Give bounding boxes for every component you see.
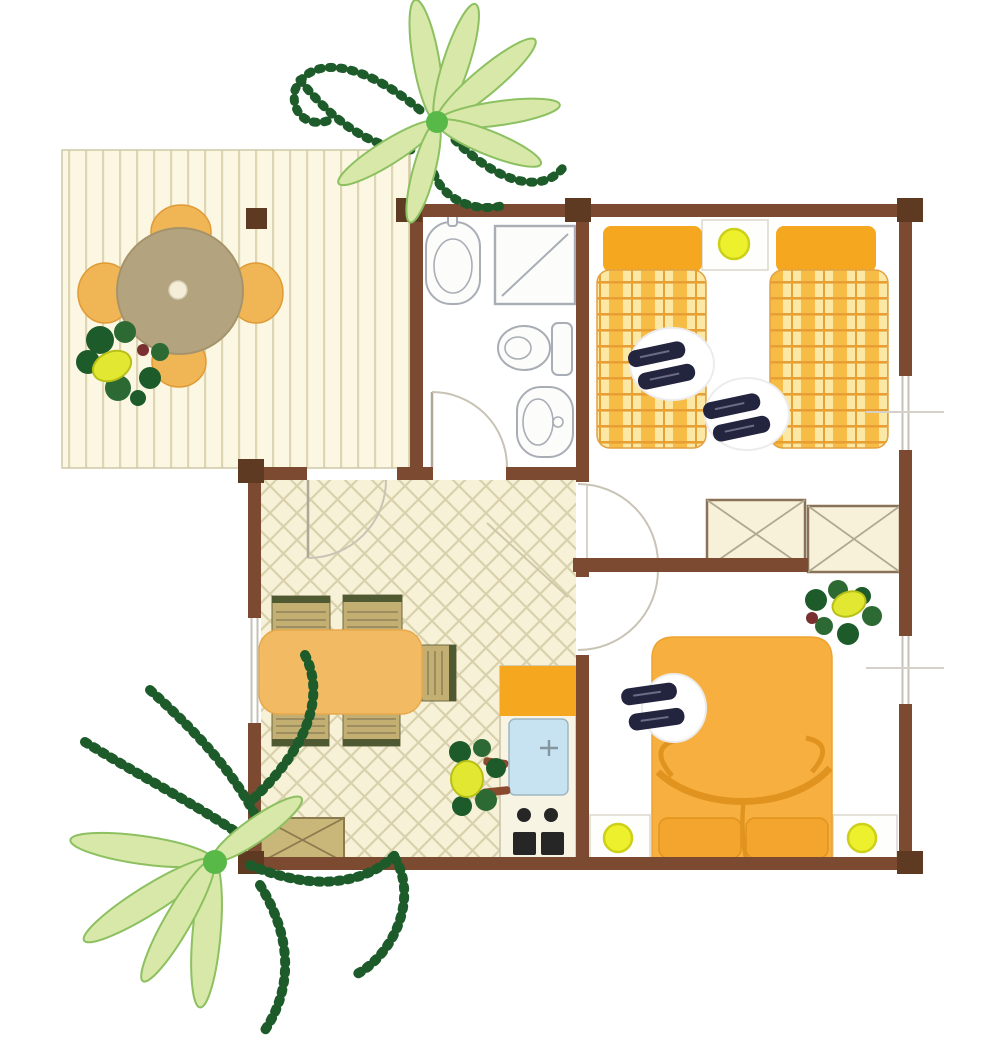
dining-chair-end: [422, 645, 456, 701]
wardrobe-2: [808, 506, 900, 572]
lamp-icon: [848, 824, 876, 852]
washbasin: [426, 210, 480, 304]
bed-pillow: [776, 226, 876, 272]
dining-chair-top-right: [343, 595, 402, 631]
east-wall-upper: [899, 204, 912, 376]
double-bed: [652, 637, 832, 858]
patio-table-center: [169, 281, 187, 299]
east-wall-middle: [899, 450, 912, 636]
lamp-icon: [604, 824, 632, 852]
dining-chair-bottom-right: [343, 713, 400, 746]
bed-pillow: [659, 818, 741, 858]
deck-terrace: [62, 150, 410, 468]
bathroom-west-wall: [410, 204, 423, 470]
nightstand-right: [833, 815, 897, 859]
bathroom: [426, 210, 575, 457]
living-north-wall-2: [397, 467, 433, 480]
door-arc: [432, 392, 507, 467]
divider-wall-upper: [576, 204, 589, 482]
bed-pillow: [603, 226, 702, 272]
east-wall-lower: [899, 704, 912, 870]
living-west-wall-upper: [248, 465, 261, 618]
bedroom-double: [590, 580, 897, 859]
plant-fruit: [451, 761, 483, 797]
plant-berry: [806, 612, 818, 624]
door-arc: [578, 570, 658, 650]
corridor-south-wall: [573, 558, 808, 572]
deck-post: [246, 208, 267, 229]
floor-plan-canvas: [0, 0, 1000, 1040]
floor-plan-svg: [0, 0, 1000, 1040]
bedroom-twin: [597, 220, 888, 450]
palm-heart: [426, 111, 448, 133]
window-west: [252, 618, 258, 723]
nightstand-twin: [702, 220, 768, 270]
bedroom-potted-plant: [805, 580, 882, 645]
kitchen-sink: [509, 719, 568, 795]
bed-pillow: [746, 818, 828, 858]
palm-heart: [203, 850, 227, 874]
shower: [495, 226, 575, 304]
living-north-wall-3: [506, 467, 578, 480]
divider-wall-lower: [576, 655, 589, 870]
lamp-icon: [719, 229, 749, 259]
slippers-pair-c: [620, 674, 706, 742]
bidet: [517, 387, 573, 457]
corridor-door-swing: [578, 484, 658, 564]
door-arc: [578, 484, 658, 564]
dining-table: [259, 630, 422, 714]
nightstand-left: [590, 815, 650, 859]
kitchen-worktop: [500, 666, 576, 716]
toilet: [498, 323, 572, 375]
bedroom-door-swing: [578, 570, 658, 650]
slippers-pair-b: [702, 378, 789, 450]
dining-chair-top-left: [272, 596, 330, 631]
window-east-2: [866, 636, 944, 704]
bathroom-door-swing: [432, 392, 507, 467]
wardrobe-1: [707, 500, 805, 568]
plant-berry: [137, 344, 149, 356]
